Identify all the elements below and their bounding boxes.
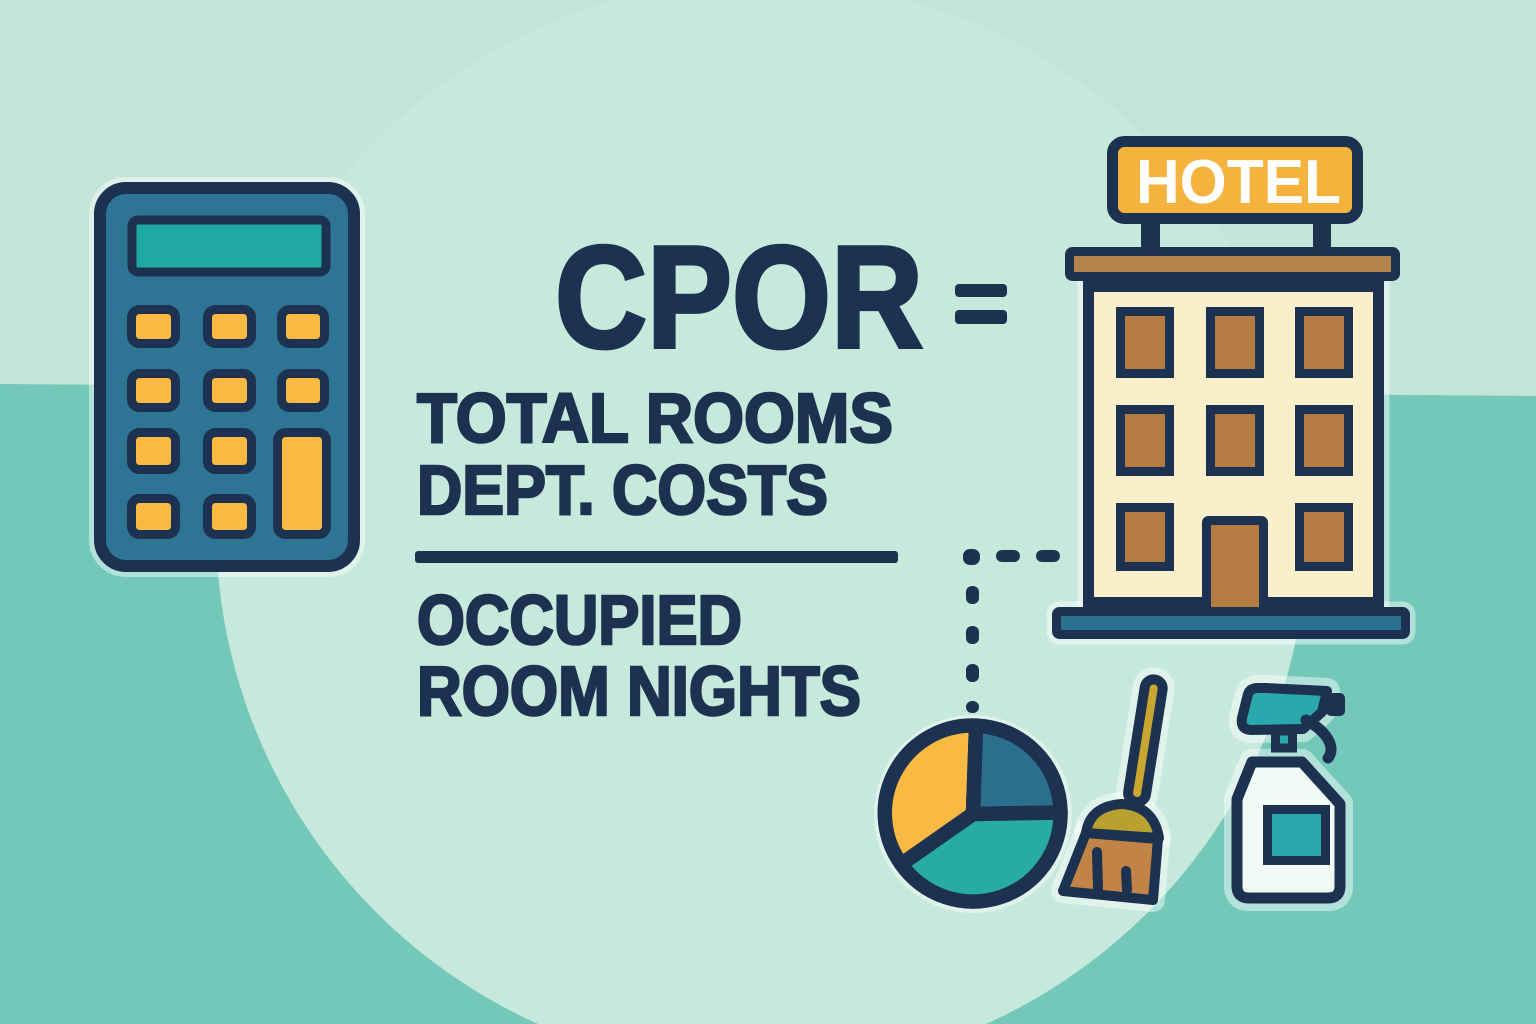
svg-text:ROOM NIGHTS: ROOM NIGHTS bbox=[417, 652, 861, 730]
svg-text:HOTEL: HOTEL bbox=[1136, 148, 1341, 217]
svg-text:DEPT. COSTS: DEPT. COSTS bbox=[417, 451, 828, 529]
svg-text:OCCUPIED: OCCUPIED bbox=[417, 581, 742, 659]
svg-text:CPOR: CPOR bbox=[555, 216, 923, 378]
svg-text:TOTAL ROOMS: TOTAL ROOMS bbox=[417, 379, 893, 457]
